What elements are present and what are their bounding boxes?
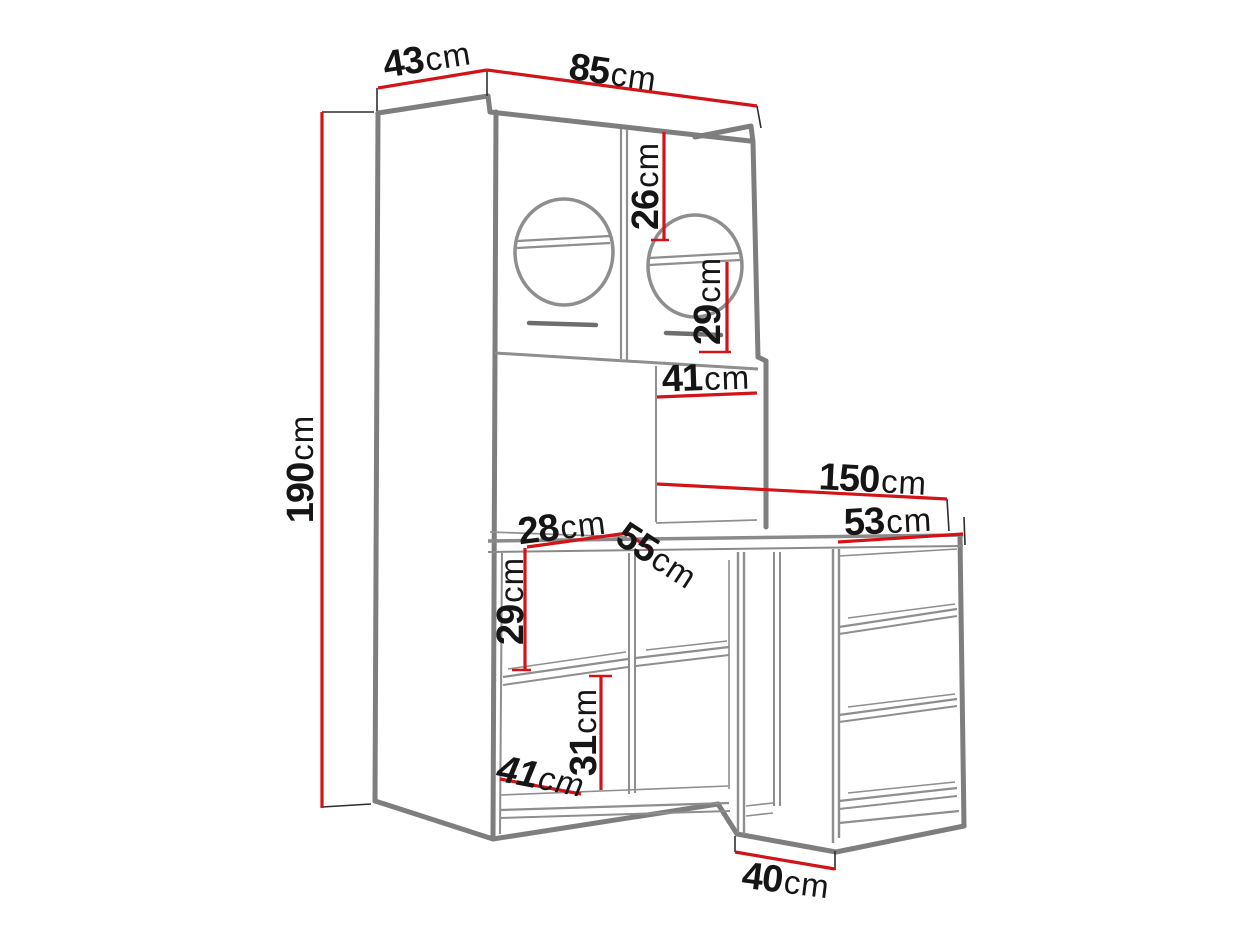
- porthole-left: [515, 199, 613, 305]
- dim-unit: cm: [566, 688, 603, 734]
- door-handle-left: [529, 323, 596, 325]
- dim-value: 26: [625, 190, 667, 230]
- dim-unit: cm: [628, 142, 665, 188]
- dim-unit: cm: [782, 863, 832, 905]
- dim-value: 29: [490, 605, 532, 645]
- dim-value: 41: [661, 357, 703, 400]
- side-shelf-unit: [833, 549, 959, 843]
- dim-unit: cm: [704, 358, 751, 397]
- dim-unit: cm: [880, 462, 928, 501]
- dim-value: 150: [818, 456, 881, 501]
- dim-unit: cm: [885, 501, 933, 540]
- diagram-stage: 43cm 85cm 26cm 29cm 41cm 150cm 53cm 28cm…: [0, 0, 1256, 942]
- dim-label-41-upper: 41cm: [661, 357, 751, 398]
- dim-value: 43: [380, 39, 426, 87]
- dim-label-53: 53cm: [843, 500, 933, 543]
- dim-label-29-upper: 29cm: [689, 257, 727, 345]
- dim-value: 28: [516, 507, 561, 554]
- dim-unit: cm: [493, 557, 530, 603]
- dim-value: 85: [566, 46, 612, 93]
- dim-value: 53: [843, 500, 885, 544]
- dim-unit: cm: [558, 504, 608, 546]
- dim-unit: cm: [609, 55, 660, 98]
- dim-value: 29: [687, 305, 729, 345]
- dim-unit: cm: [422, 34, 473, 78]
- dim-label-26: 26cm: [627, 142, 665, 230]
- dim-unit: cm: [690, 257, 727, 303]
- dim-label-29-lower: 29cm: [492, 557, 530, 645]
- dim-label-190: 190cm: [282, 415, 320, 523]
- dim-label-150: 150cm: [818, 458, 928, 502]
- dim-unit: cm: [283, 415, 320, 461]
- dim-value: 41: [494, 748, 542, 797]
- dim-value: 40: [740, 855, 785, 902]
- dim-value: 190: [280, 463, 322, 523]
